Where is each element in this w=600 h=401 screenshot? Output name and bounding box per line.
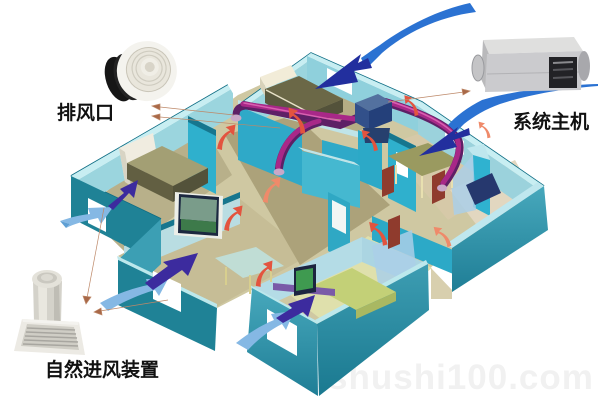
- svg-text:排风口: 排风口: [57, 101, 114, 124]
- svg-text:系统主机: 系统主机: [513, 110, 589, 133]
- svg-text:自然进风装置: 自然进风装置: [45, 358, 159, 381]
- svg-text:shushi100.com: shushi100.com: [328, 358, 594, 397]
